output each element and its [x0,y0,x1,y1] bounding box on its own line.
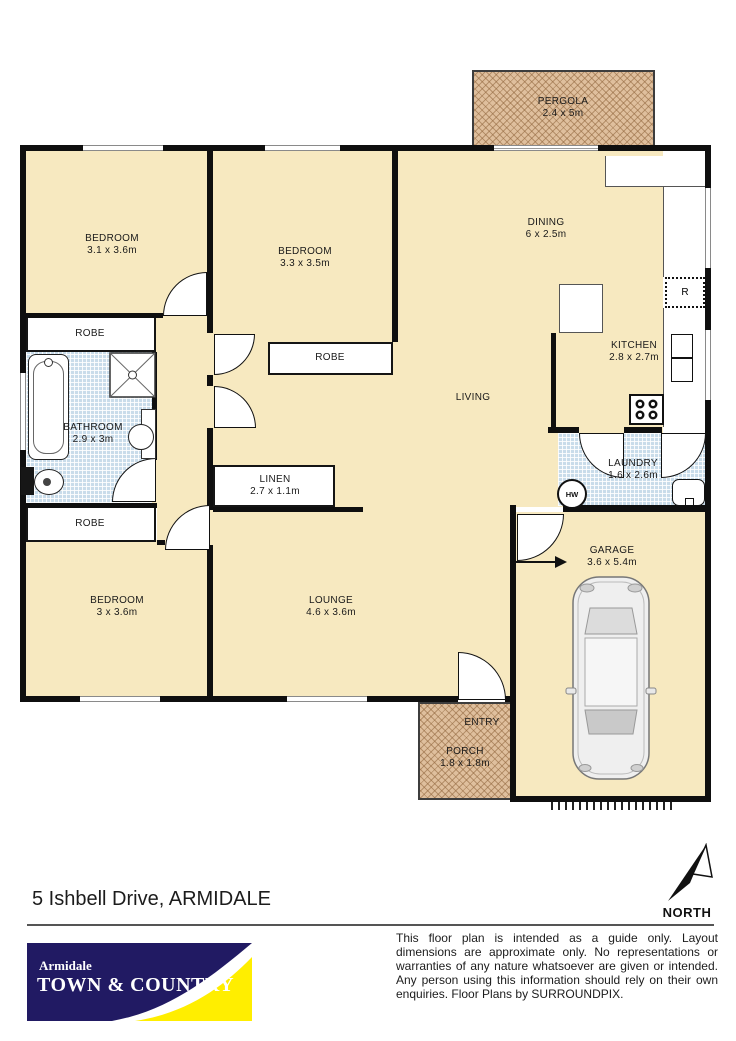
room-dims: 3.3 x 3.5m [235,258,375,270]
room-name: LAUNDRY [563,458,703,470]
robe-label-2: ROBE [20,518,160,530]
stove-icon [629,394,664,425]
wall [20,503,157,508]
wall [207,375,213,386]
room-label-kitchen: KITCHEN 2.8 x 2.7m [564,340,704,364]
room-label-bathroom: BATHROOM 2.9 x 3m [23,422,163,446]
window [265,145,340,151]
room-dims: 1.6 x 2.6m [563,470,703,482]
wall [20,145,83,151]
room-name: BATHROOM [23,422,163,434]
north-arrow-icon [660,843,716,905]
wall [705,400,711,802]
wall [340,145,494,151]
disclaimer-text: This floor plan is intended as a guide o… [396,931,718,1001]
wall [213,507,363,512]
laundry-tub-icon [672,479,705,506]
wall [705,151,711,188]
room-name: LIVING [403,392,543,404]
room-label-dining: DINING 6 x 2.5m [476,217,616,241]
room-name: ROBE [20,518,160,530]
room-label-bedroom2: BEDROOM 3.3 x 3.5m [235,246,375,270]
room-label-linen: LINEN 2.7 x 1.1m [205,474,345,498]
wall [157,540,165,545]
wall [563,505,711,512]
room-label-bedroom3: BEDROOM 3 x 3.6m [47,595,187,619]
kitchen-bench-right-upper [663,187,705,277]
wall [20,696,80,702]
window [80,696,160,702]
room-label-living: LIVING [403,392,543,404]
wall [207,545,213,702]
wall [510,505,516,514]
room-label-porch: PORCH 1.8 x 1.8m [399,746,531,770]
room-name: ROBE [260,352,400,364]
window [83,145,163,151]
room-name: PERGOLA [493,96,633,108]
wall [367,696,458,702]
hot-water-label: HW [566,490,579,499]
room-name: LOUNGE [261,595,401,607]
window [705,188,711,268]
toilet-cistern [21,467,34,495]
wall [624,427,662,433]
room-dims: 4.6 x 3.6m [261,607,401,619]
room-name: PORCH [399,746,531,758]
fridge-label: R [681,287,688,298]
room-dims: 1.8 x 1.8m [399,758,531,770]
floor-plan-page: R HW [0,0,736,1041]
shower-icon [109,352,156,398]
wall [160,696,287,702]
room-label-garage: GARAGE 3.6 x 5.4m [542,545,682,569]
room-dims: 2.4 x 5m [493,108,633,120]
logo-line2: TOWN & COUNTRY [37,974,234,996]
room-name: LINEN [205,474,345,486]
window [705,330,711,400]
room-label-bedroom1: BEDROOM 3.1 x 3.6m [42,233,182,257]
room-name: ENTRY [416,717,548,729]
wall [598,145,711,151]
room-name: BEDROOM [47,595,187,607]
window [287,696,367,702]
kitchen-sink-bench [559,284,603,333]
room-label-pergola: PERGOLA 2.4 x 5m [493,96,633,120]
wall [163,145,265,151]
room-dims: 3 x 3.6m [47,607,187,619]
room-name: DINING [476,217,616,229]
kitchen-bench-top [605,156,705,187]
sliding-door [494,145,598,151]
room-label-lounge: LOUNGE 4.6 x 3.6m [261,595,401,619]
property-address: 5 Ishbell Drive, ARMIDALE [32,888,271,911]
wall [551,333,556,427]
hot-water-icon: HW [557,479,587,509]
wall [548,427,579,433]
room-dims: 6 x 2.5m [476,229,616,241]
divider-line [27,924,714,926]
fridge-icon: R [665,277,705,308]
logo-line1: Armidale [39,958,92,973]
wall [207,151,213,333]
car-icon [565,572,657,784]
room-name: GARAGE [542,545,682,557]
robe-label-3: ROBE [260,352,400,364]
room-name: BEDROOM [42,233,182,245]
north-label: NORTH [655,905,719,920]
room-dims: 2.8 x 2.7m [564,352,704,364]
agency-logo: Armidale TOWN & COUNTRY [27,943,252,1021]
room-dims: 2.7 x 1.1m [205,486,345,498]
room-name: KITCHEN [564,340,704,352]
room-dims: 3.1 x 3.6m [42,245,182,257]
wall [20,313,163,318]
room-dims: 3.6 x 5.4m [542,557,682,569]
wall [392,151,398,342]
wall [705,268,711,330]
room-name: ROBE [20,328,160,340]
entry-label: ENTRY [416,717,548,729]
robe-label-1: ROBE [20,328,160,340]
toilet-detail [43,478,51,486]
room-dims: 2.9 x 3m [23,434,163,446]
bath-tap-icon [44,358,53,367]
roller-door-icon [551,802,675,810]
room-name: BEDROOM [235,246,375,258]
room-label-laundry: LAUNDRY 1.6 x 2.6m [563,458,703,482]
